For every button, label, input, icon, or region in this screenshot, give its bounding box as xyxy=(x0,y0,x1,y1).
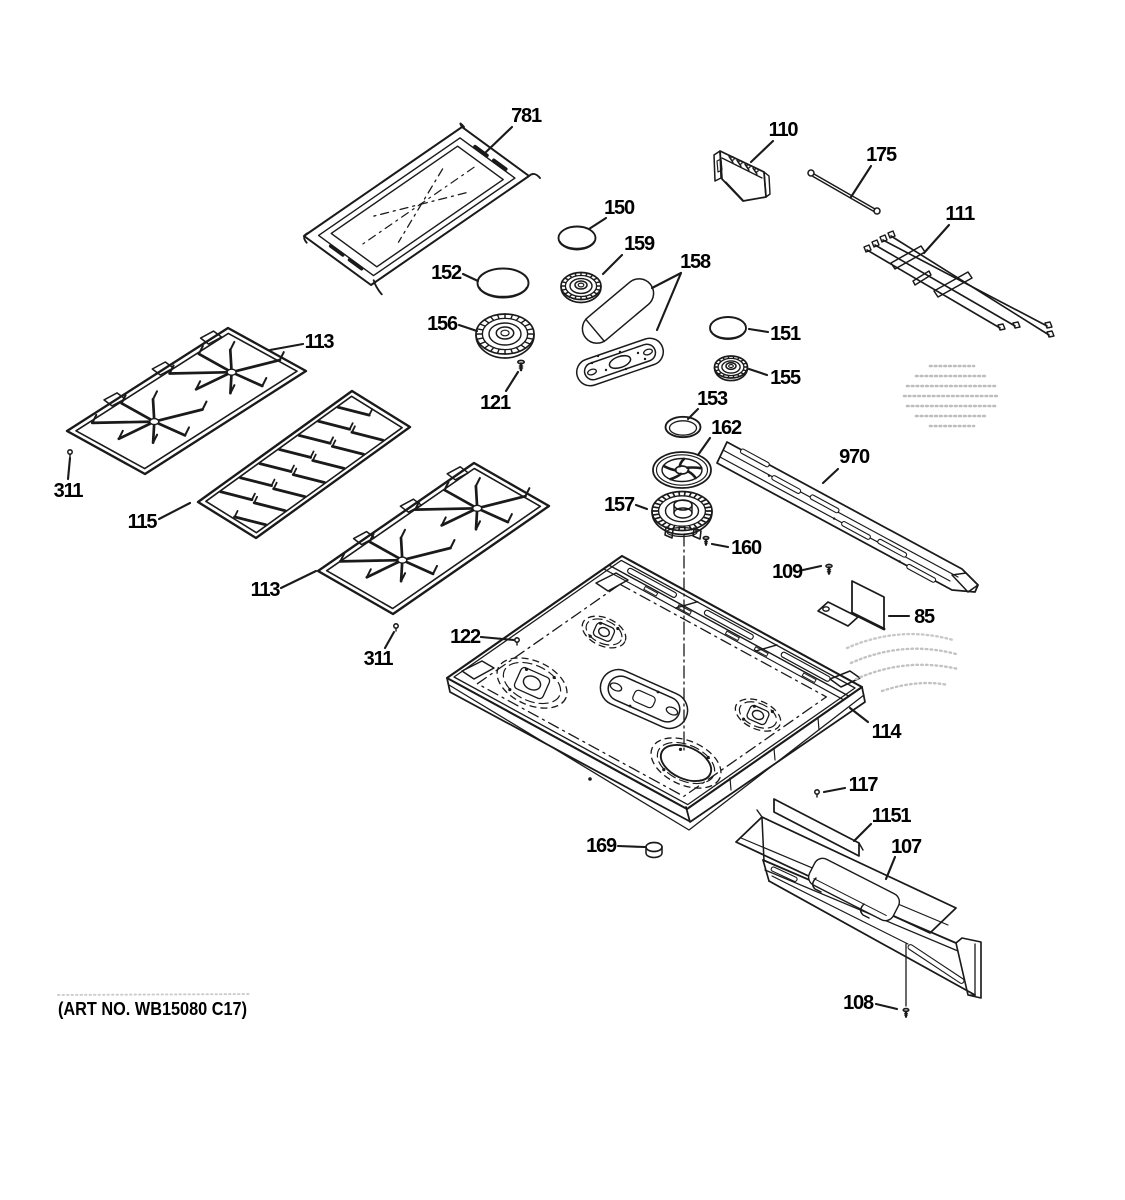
svg-text:85: 85 xyxy=(914,606,935,628)
svg-text:311: 311 xyxy=(364,648,394,670)
svg-text:156: 156 xyxy=(427,313,458,335)
svg-text:162: 162 xyxy=(711,417,742,439)
svg-text:157: 157 xyxy=(604,494,635,516)
svg-text:113: 113 xyxy=(251,579,281,601)
svg-text:1151: 1151 xyxy=(872,805,912,827)
svg-text:311: 311 xyxy=(54,480,84,502)
svg-text:781: 781 xyxy=(511,105,542,127)
svg-text:110: 110 xyxy=(769,119,799,141)
svg-text:115: 115 xyxy=(128,511,158,533)
svg-text:108: 108 xyxy=(843,992,874,1014)
svg-text:121: 121 xyxy=(480,392,511,414)
svg-text:158: 158 xyxy=(680,251,711,273)
svg-text:114: 114 xyxy=(872,721,903,743)
svg-text:117: 117 xyxy=(849,774,879,796)
svg-text:970: 970 xyxy=(839,446,870,468)
svg-text:155: 155 xyxy=(770,367,801,389)
svg-text:175: 175 xyxy=(866,144,897,166)
svg-text:169: 169 xyxy=(586,835,617,857)
svg-text:160: 160 xyxy=(731,537,762,559)
svg-text:107: 107 xyxy=(891,836,922,858)
svg-text:159: 159 xyxy=(624,233,655,255)
svg-text:(ART NO. WB15080 C17): (ART NO. WB15080 C17) xyxy=(58,998,247,1019)
svg-text:151: 151 xyxy=(770,323,801,345)
svg-text:150: 150 xyxy=(604,197,635,219)
svg-text:113: 113 xyxy=(305,331,335,353)
svg-text:122: 122 xyxy=(450,626,481,648)
svg-text:153: 153 xyxy=(697,388,728,410)
svg-text:111: 111 xyxy=(945,203,975,225)
svg-text:152: 152 xyxy=(431,262,462,284)
svg-text:109: 109 xyxy=(772,561,803,583)
